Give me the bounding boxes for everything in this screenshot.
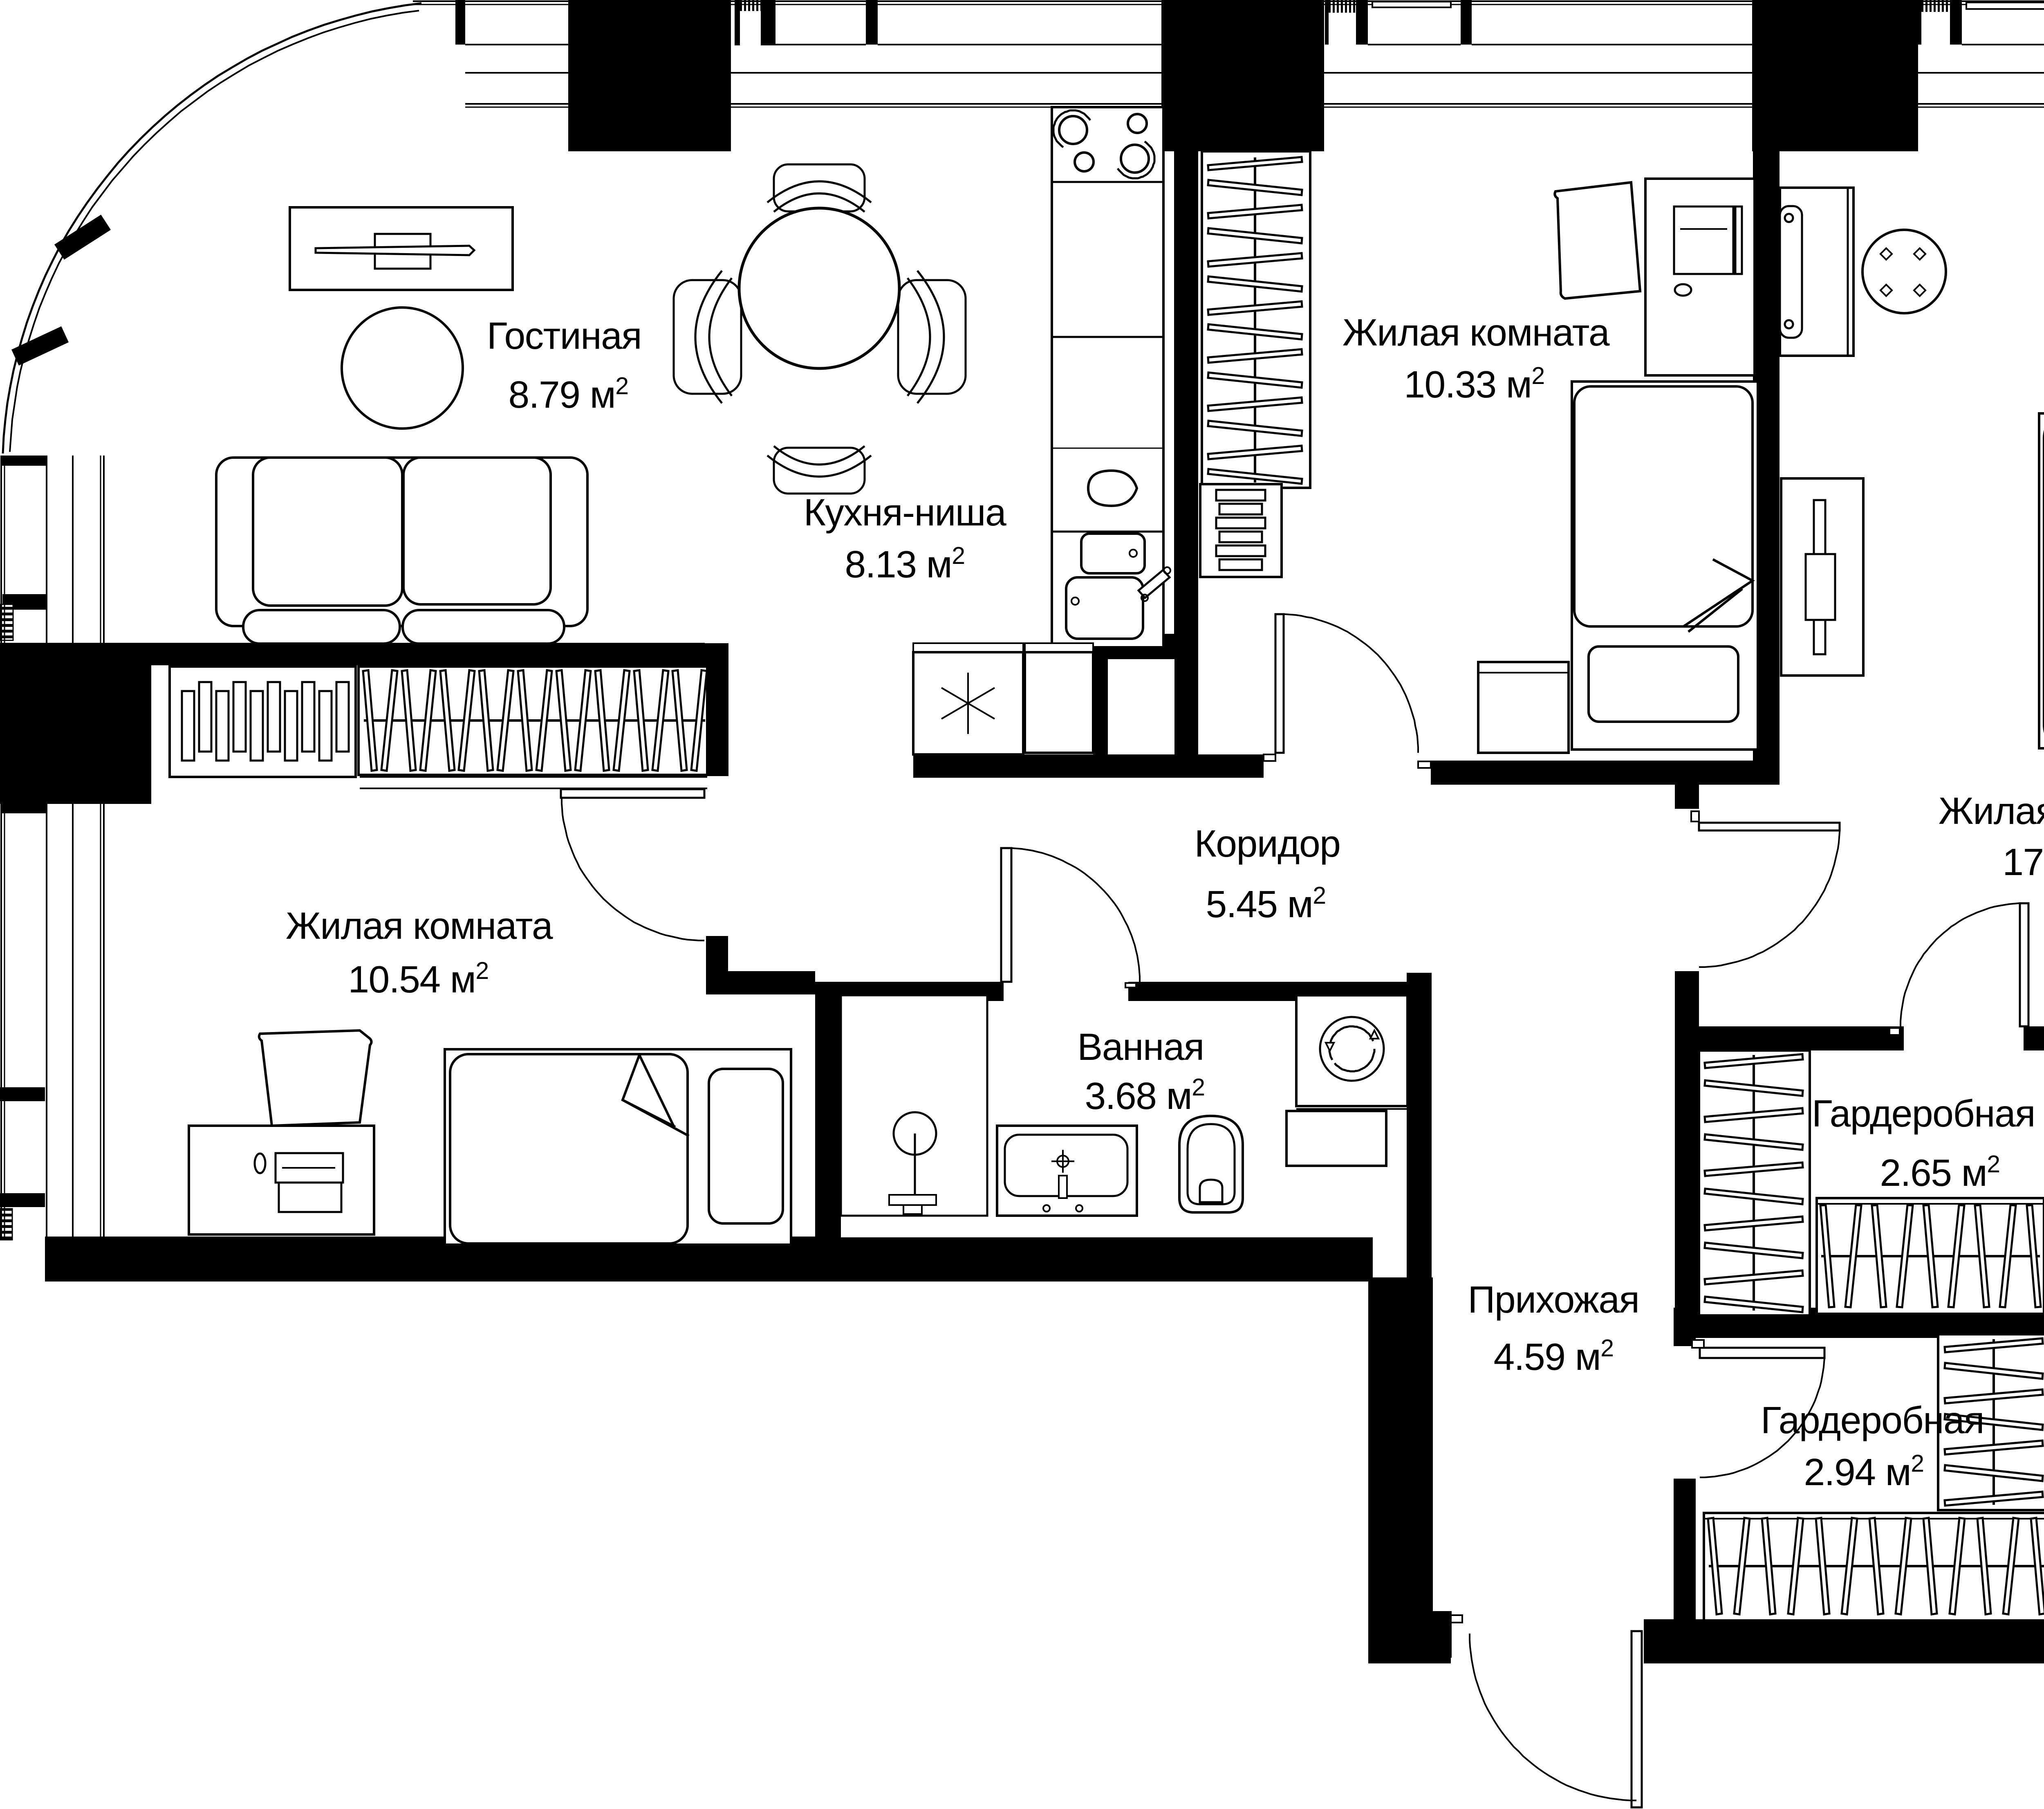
- svg-text:4.59 м2: 4.59 м2: [1493, 1335, 1613, 1378]
- svg-text:Кухня-ниша: Кухня-ниша: [804, 491, 1006, 534]
- svg-text:5.45 м2: 5.45 м2: [1206, 882, 1325, 925]
- svg-text:2.94 м2: 2.94 м2: [1804, 1450, 1923, 1493]
- svg-text:Жилая комната: Жилая комната: [1342, 311, 1610, 354]
- svg-text:Гостиная: Гостиная: [487, 314, 641, 357]
- svg-text:Прихожая: Прихожая: [1468, 1278, 1639, 1321]
- svg-text:Ванная: Ванная: [1077, 1026, 1204, 1068]
- svg-text:8.13 м2: 8.13 м2: [845, 542, 964, 586]
- svg-text:2.65 м2: 2.65 м2: [1880, 1151, 1999, 1194]
- svg-text:8.79 м2: 8.79 м2: [508, 373, 628, 416]
- svg-text:Жилая комната: Жилая комната: [1939, 790, 2044, 832]
- svg-text:Гардеробная: Гардеробная: [1761, 1399, 1984, 1441]
- svg-text:17.20 м2: 17.20 м2: [2002, 840, 2044, 883]
- svg-text:10.54 м2: 10.54 м2: [348, 957, 488, 1001]
- svg-text:Жилая комната: Жилая комната: [286, 904, 553, 947]
- svg-text:Гардеробная: Гардеробная: [1812, 1092, 2035, 1135]
- svg-text:Коридор: Коридор: [1195, 822, 1340, 865]
- svg-text:10.33 м2: 10.33 м2: [1404, 362, 1544, 406]
- svg-text:3.68 м2: 3.68 м2: [1085, 1074, 1204, 1117]
